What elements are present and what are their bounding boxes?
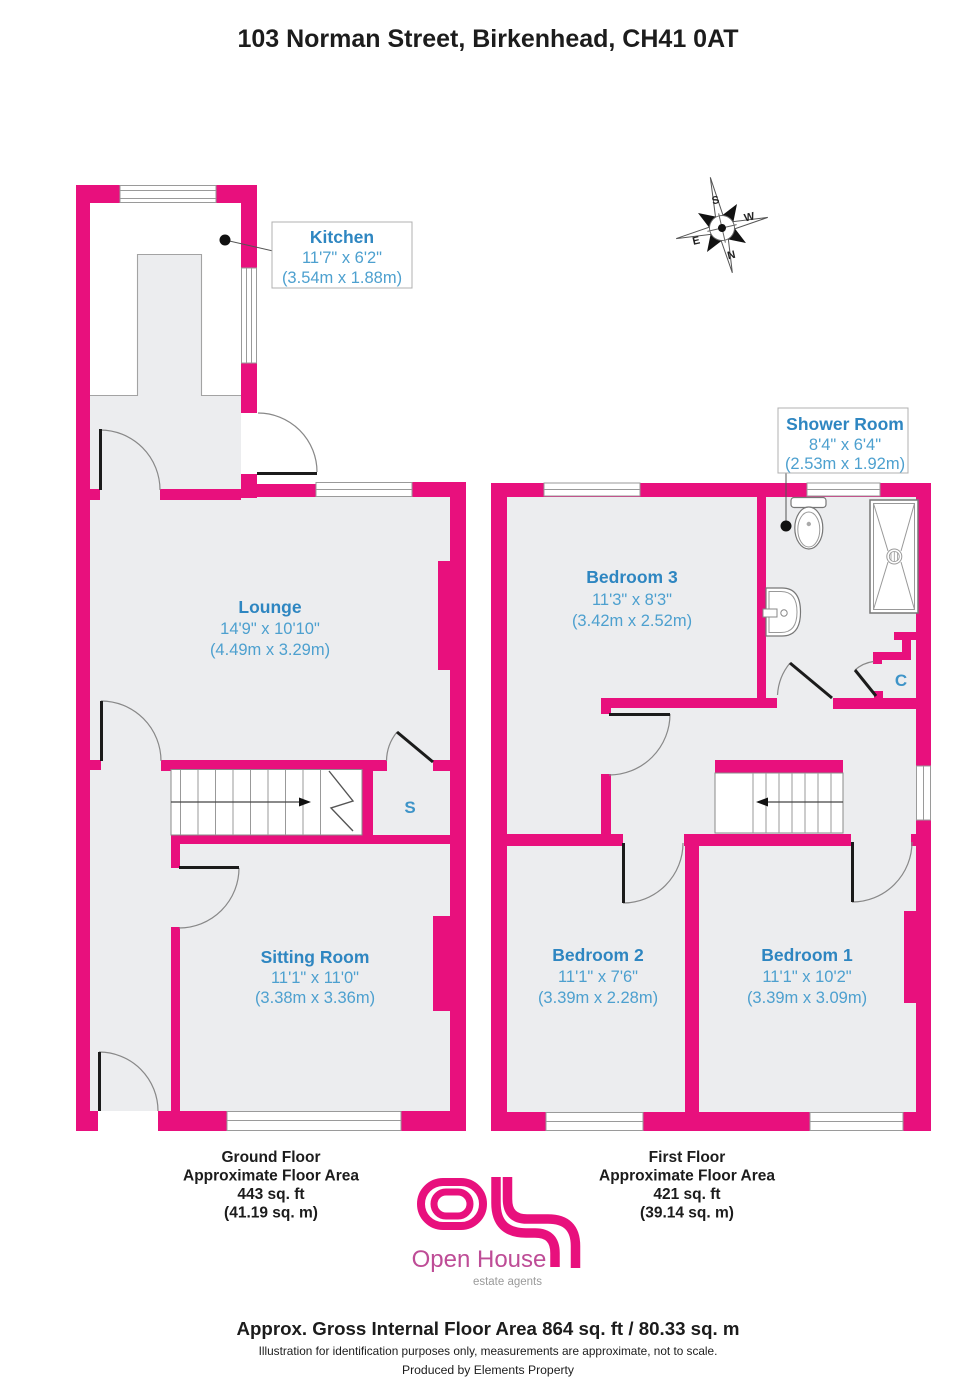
svg-text:(3.39m x 2.28m): (3.39m x 2.28m) [538,989,658,1007]
svg-text:First Floor: First Floor [649,1149,726,1166]
svg-text:Approximate Floor Area: Approximate Floor Area [183,1168,359,1185]
svg-text:Produced by Elements Property: Produced by Elements Property [402,1363,575,1377]
svg-text:Lounge: Lounge [238,597,301,617]
svg-text:11'1" x 10'2": 11'1" x 10'2" [762,968,851,986]
svg-text:C: C [895,671,907,690]
svg-text:W: W [743,210,756,224]
svg-text:Bedroom 2: Bedroom 2 [552,945,644,965]
svg-text:N: N [726,249,736,262]
svg-text:(4.49m x 3.29m): (4.49m x 3.29m) [210,641,330,659]
svg-text:Approx. Gross Internal Floor A: Approx. Gross Internal Floor Area 864 sq… [237,1318,740,1339]
svg-text:S: S [404,798,415,817]
svg-text:estate agents: estate agents [473,1276,542,1288]
svg-text:(3.39m x 3.09m): (3.39m x 3.09m) [747,989,867,1007]
svg-text:(39.14 sq. m): (39.14 sq. m) [640,1205,734,1222]
svg-text:443 sq. ft: 443 sq. ft [237,1186,304,1203]
svg-text:11'7" x 6'2": 11'7" x 6'2" [302,249,382,267]
svg-text:(3.42m x 2.52m): (3.42m x 2.52m) [572,612,692,630]
svg-text:421 sq. ft: 421 sq. ft [653,1186,720,1203]
svg-text:Shower Room: Shower Room [786,414,904,434]
svg-text:Bedroom 3: Bedroom 3 [586,567,678,587]
svg-text:11'1" x 11'0": 11'1" x 11'0" [271,969,359,987]
svg-text:(3.54m x 1.88m): (3.54m x 1.88m) [282,269,402,287]
svg-text:(2.53m x 1.92m): (2.53m x 1.92m) [785,455,905,473]
svg-text:11'3" x 8'3": 11'3" x 8'3" [592,591,672,609]
svg-text:Approximate Floor Area: Approximate Floor Area [599,1168,775,1185]
svg-text:E: E [691,234,701,247]
svg-text:Sitting Room: Sitting Room [261,947,370,967]
svg-text:Kitchen: Kitchen [310,227,374,247]
svg-text:(3.38m x 3.36m): (3.38m x 3.36m) [255,989,375,1007]
svg-text:Open House: Open House [412,1246,547,1273]
svg-text:Ground Floor: Ground Floor [221,1149,320,1166]
svg-text:103 Norman Street, Birkenhead,: 103 Norman Street, Birkenhead, CH41 0AT [237,25,738,53]
svg-text:Illustration for identificatio: Illustration for identification purposes… [259,1344,718,1358]
svg-text:S: S [711,194,721,207]
svg-text:Bedroom 1: Bedroom 1 [761,945,853,965]
svg-text:8'4" x 6'4": 8'4" x 6'4" [809,436,881,454]
svg-text:(41.19 sq. m): (41.19 sq. m) [224,1205,318,1222]
svg-text:14'9" x 10'10": 14'9" x 10'10" [220,620,320,638]
svg-text:11'1" x 7'6": 11'1" x 7'6" [558,968,638,986]
